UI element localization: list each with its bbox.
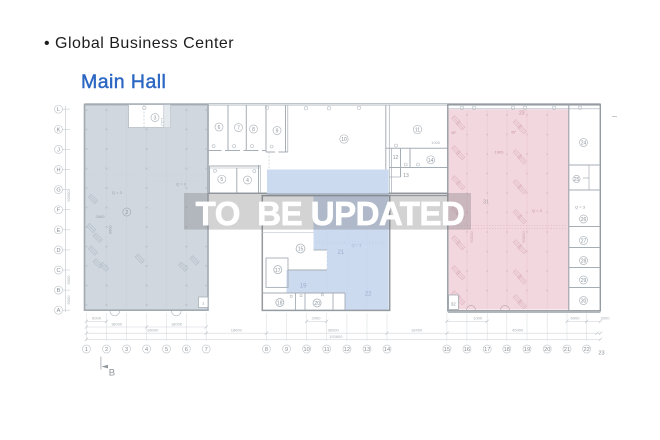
svg-text:B: B [109,368,115,379]
svg-text:22: 22 [365,291,372,297]
svg-text:17: 17 [484,347,490,353]
svg-text:4: 4 [145,347,148,353]
svg-text:45°: 45° [451,131,457,135]
svg-text:20: 20 [544,347,550,353]
svg-text:5: 5 [165,347,168,353]
svg-text:C: C [56,268,60,274]
svg-text:4: 4 [246,178,249,184]
svg-text:19: 19 [300,284,307,290]
svg-text:7: 7 [205,347,208,353]
svg-text:19: 19 [524,347,530,353]
svg-text:Q = 3: Q = 3 [575,205,586,210]
svg-text:21: 21 [338,250,345,256]
svg-text:E: E [57,228,61,234]
svg-text:45°: 45° [511,131,517,135]
svg-text:18: 18 [504,347,510,353]
svg-text:3000: 3000 [601,316,611,321]
svg-text:6000: 6000 [66,295,71,305]
svg-text:Q = 3: Q = 3 [112,190,123,195]
svg-text:18: 18 [277,301,283,307]
svg-text:K: K [57,127,61,133]
svg-text:F: F [57,208,61,214]
svg-text:24: 24 [581,141,587,147]
svg-text:6000: 6000 [66,275,71,285]
svg-text:22: 22 [583,347,589,353]
svg-text:7: 7 [237,126,240,132]
svg-text:9600: 9600 [107,224,112,234]
svg-text:153600: 153600 [329,334,343,339]
svg-text:8: 8 [252,127,255,133]
svg-text:J: J [57,147,60,153]
svg-text:21: 21 [564,347,570,353]
svg-text:9: 9 [276,129,279,135]
svg-text:10: 10 [303,347,309,353]
svg-text:36000: 36000 [147,328,159,333]
svg-text:14: 14 [428,158,434,164]
svg-text:6: 6 [218,125,221,131]
svg-text:13: 13 [403,173,409,179]
svg-text:3: 3 [125,347,128,353]
svg-text:28: 28 [581,259,587,265]
svg-text:6000: 6000 [92,316,102,321]
svg-text:25: 25 [574,177,580,183]
svg-text:6000: 6000 [571,316,581,321]
svg-text:13: 13 [364,347,370,353]
svg-text:18000: 18000 [231,328,243,333]
svg-text:2600: 2600 [96,214,106,219]
svg-text:2000: 2000 [312,316,322,321]
svg-text:G: G [56,188,60,194]
svg-text:23: 23 [598,351,604,357]
svg-text:1000: 1000 [431,140,441,145]
svg-text:6: 6 [185,347,188,353]
svg-text:B: B [57,288,61,294]
svg-text:1900: 1900 [495,150,505,155]
svg-text:L: L [57,107,60,113]
svg-text:18400: 18400 [411,328,423,333]
svg-text:9: 9 [285,347,288,353]
svg-text:10: 10 [341,137,347,143]
svg-text:60000: 60000 [469,231,474,243]
svg-text:30: 30 [581,299,587,305]
svg-text:14: 14 [384,347,390,353]
svg-text:18000: 18000 [111,322,123,327]
svg-text:Q = 3: Q = 3 [532,208,543,213]
svg-text:36000: 36000 [328,328,340,333]
svg-text:31: 31 [483,200,489,206]
svg-text:2: 2 [125,210,128,216]
svg-text:16: 16 [464,347,470,353]
svg-text:H: H [56,168,60,174]
svg-text:20: 20 [314,301,320,307]
svg-text:32: 32 [451,302,457,307]
svg-text:15: 15 [298,247,304,253]
svg-text:12: 12 [344,347,350,353]
svg-text:11: 11 [324,347,330,353]
svg-text:15: 15 [444,347,450,353]
svg-text:17: 17 [275,268,281,274]
svg-text:TO BE UPDATED: TO BE UPDATED [196,195,465,232]
svg-text:D: D [56,248,60,254]
svg-text:27: 27 [581,239,587,245]
svg-text:3: 3 [154,116,157,122]
svg-text:60000: 60000 [521,231,526,243]
svg-text:A: A [57,308,61,314]
svg-text:18000: 18000 [171,322,183,327]
svg-text:45000: 45000 [512,328,524,333]
svg-text:Q = 3: Q = 3 [351,243,362,248]
svg-text:1000: 1000 [473,316,483,321]
svg-text:1: 1 [85,347,88,353]
svg-text:11: 11 [415,128,420,134]
svg-text:8: 8 [265,347,268,353]
svg-text:12: 12 [393,155,399,161]
svg-text:5: 5 [220,177,223,183]
svg-text:2: 2 [105,347,108,353]
svg-text:26: 26 [581,217,587,223]
svg-text:Q = 3: Q = 3 [176,182,187,187]
svg-text:29: 29 [581,278,587,284]
svg-text:23: 23 [519,111,525,117]
svg-text:60000: 60000 [66,190,71,202]
